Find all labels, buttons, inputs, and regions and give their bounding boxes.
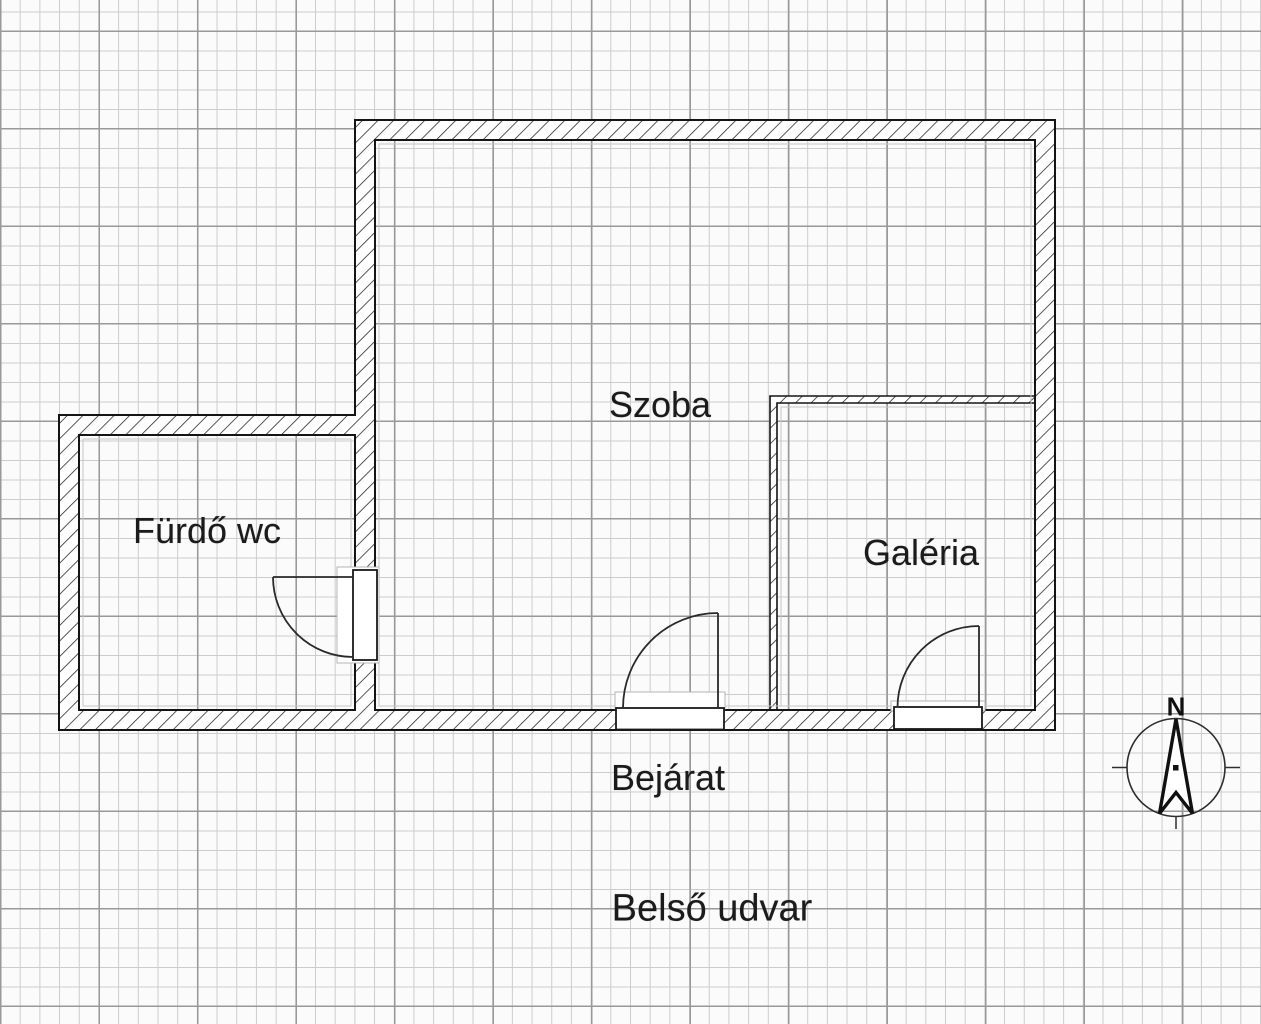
walls-hatched [59, 120, 1055, 730]
annotation-bejarat: Bejárat [611, 757, 725, 799]
annotation-belso-udvar: Belső udvar [612, 888, 813, 931]
floor-plan-canvas: Szoba Fürdő wc Galéria Bejárat Belső udv… [0, 0, 1261, 1024]
door-ghost-frames [337, 567, 985, 711]
wall-right [1035, 140, 1055, 710]
wall-top [355, 120, 1055, 140]
room-label-galeria: Galéria [863, 532, 979, 574]
room-label-furdo-wc: Fürdő wc [133, 510, 281, 552]
compass-center-dot [1173, 765, 1179, 771]
ghost-entry-door [615, 692, 725, 709]
opening-galeria-door [894, 707, 982, 729]
outline-bath-interior [79, 435, 355, 710]
opening-bath-door [353, 570, 377, 660]
inset-bath [83, 439, 351, 706]
wall-bath-top [59, 415, 355, 435]
compass-north-label: N [1167, 692, 1186, 723]
opening-entry-door [616, 708, 724, 730]
compass-rose [1112, 719, 1240, 830]
wall-galeria-left [770, 403, 777, 710]
room-label-szoba: Szoba [609, 384, 711, 426]
galeria-door-swing [898, 626, 980, 708]
galeria-door-arc [898, 626, 980, 708]
wall-bath-left [59, 435, 79, 710]
wall-galeria-top [770, 396, 1035, 403]
